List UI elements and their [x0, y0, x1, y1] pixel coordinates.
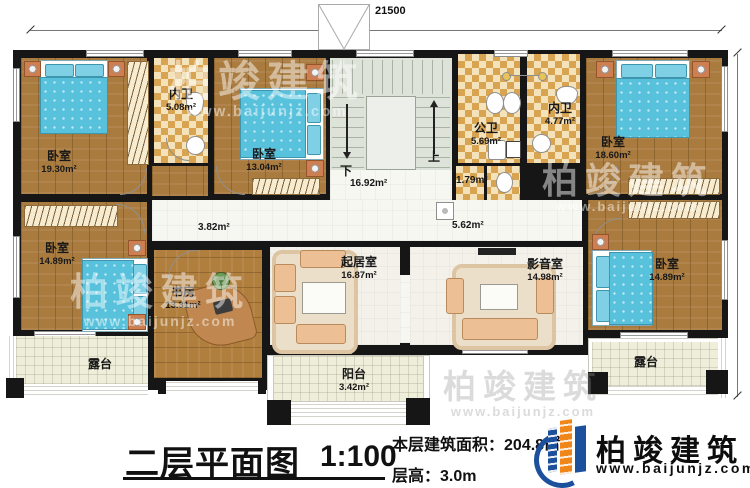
bed-pillow — [307, 93, 321, 123]
window — [494, 50, 528, 57]
bed-icon — [40, 60, 108, 134]
label-stairs-area: 16.92m² — [350, 178, 387, 189]
terrace-left — [6, 336, 148, 398]
window — [721, 240, 728, 300]
window — [13, 68, 20, 122]
right-dimension-line — [737, 54, 738, 397]
brand-logo-icon — [534, 418, 592, 484]
vestibule-floor — [152, 166, 208, 196]
logo-building-bar — [548, 427, 557, 472]
bed-blanket — [82, 260, 134, 330]
armchair-icon — [536, 278, 554, 314]
sofa-icon — [300, 250, 346, 268]
sink-icon — [503, 92, 521, 114]
wardrobe-icon — [628, 201, 720, 219]
bed-pillow — [655, 64, 687, 78]
plant-icon — [212, 272, 230, 290]
terrace-floor — [592, 342, 718, 386]
floor-plan-canvas: 21500 11000 — [0, 0, 750, 488]
washing-machine-icon — [488, 140, 506, 160]
bed-icon — [240, 88, 324, 160]
plan-scale: 1:100 — [320, 440, 397, 474]
balcony — [267, 355, 430, 425]
window — [612, 50, 688, 57]
living-media-opening — [400, 275, 410, 343]
wardrobe-icon — [252, 178, 320, 195]
bed-pillow — [307, 125, 321, 155]
wardrobe-icon — [24, 205, 118, 227]
wardrobe-icon — [127, 61, 149, 165]
watermark-site: www.baijunjz.com — [428, 405, 618, 419]
stair-treads — [332, 60, 450, 94]
column — [6, 378, 24, 398]
terrace-right — [588, 338, 728, 398]
logo-building-bar — [560, 419, 572, 475]
arrow-head — [343, 152, 351, 159]
window — [356, 50, 414, 57]
cabinet-icon — [506, 141, 521, 158]
floor-area-label: 本层建筑面积： — [392, 437, 504, 454]
bed-icon — [616, 60, 690, 138]
bed-blanket — [609, 252, 653, 325]
bed-blanket — [616, 78, 690, 138]
nightstand-icon — [592, 234, 609, 250]
top-dimension-line — [30, 30, 722, 31]
floor-height-label: 层高： — [392, 468, 440, 485]
label-wc-area: 1.79m² — [456, 175, 488, 186]
sink-icon — [496, 172, 513, 193]
sink-icon — [186, 136, 205, 155]
label-hall-area-left: 3.82m² — [198, 222, 230, 233]
label-hall-area-right: 5.62m² — [452, 220, 484, 231]
bed-blanket — [40, 77, 108, 134]
nightstand-icon — [306, 64, 324, 81]
column — [588, 372, 608, 394]
column — [258, 381, 266, 394]
column — [706, 370, 728, 394]
nightstand-icon — [128, 314, 146, 330]
sink-icon — [486, 92, 504, 114]
logo-building-bar — [575, 425, 586, 473]
stair-arrow-up — [433, 106, 435, 154]
railing — [16, 384, 148, 398]
title-underline — [123, 477, 385, 480]
armchair-icon — [446, 278, 464, 314]
washer-icon — [436, 202, 454, 220]
terrace-floor — [16, 336, 148, 384]
wardrobe-icon — [628, 178, 720, 195]
bed-pillow — [621, 64, 653, 78]
nightstand-icon — [24, 61, 41, 77]
nightstand-icon — [306, 160, 324, 177]
skylight-symbol — [318, 4, 370, 50]
window — [86, 50, 144, 57]
railing — [291, 404, 406, 420]
top-dimension-label: 21500 — [372, 5, 409, 17]
sofa-icon — [462, 318, 538, 340]
coffee-table-icon — [302, 282, 346, 314]
coffee-table-icon — [480, 284, 518, 310]
bed-pillow — [133, 264, 147, 294]
balcony-floor — [273, 355, 424, 402]
window — [721, 66, 728, 132]
stair-arrow-down — [346, 104, 348, 154]
railing — [166, 381, 258, 394]
column — [406, 398, 430, 425]
bed-pillow — [596, 256, 610, 288]
nightstand-icon — [108, 61, 125, 77]
nightstand-icon — [128, 240, 146, 256]
bed-icon — [592, 250, 652, 326]
nightstand-icon — [596, 61, 614, 78]
brand-site: www.baijunjz.com — [596, 460, 750, 476]
column — [267, 400, 291, 425]
bed-pillow — [75, 64, 104, 77]
bed-pillow — [45, 64, 74, 77]
column — [158, 381, 166, 394]
armchair-icon — [274, 296, 296, 324]
hallway-floor — [152, 200, 582, 241]
shower-head-icon — [538, 72, 547, 81]
nightstand-icon — [692, 61, 710, 78]
stair-landing — [366, 96, 416, 170]
bay-window — [158, 381, 266, 394]
window — [238, 50, 292, 57]
label-stairs-up: 上 — [428, 148, 440, 165]
label-stairs-down: 下 — [340, 162, 352, 179]
sofa-icon — [296, 324, 346, 344]
bed-pillow — [596, 290, 610, 322]
sink-icon — [532, 134, 551, 153]
bed-blanket — [240, 90, 306, 158]
floor-height-line: 层高：3.0m — [392, 462, 476, 486]
floor-height-value: 3.0m — [440, 468, 476, 485]
shower-head-icon — [502, 72, 511, 81]
arrow-head — [430, 100, 438, 107]
tv-icon — [478, 248, 516, 255]
armchair-icon — [274, 264, 296, 292]
shower-rail — [509, 75, 539, 76]
window — [13, 236, 20, 298]
